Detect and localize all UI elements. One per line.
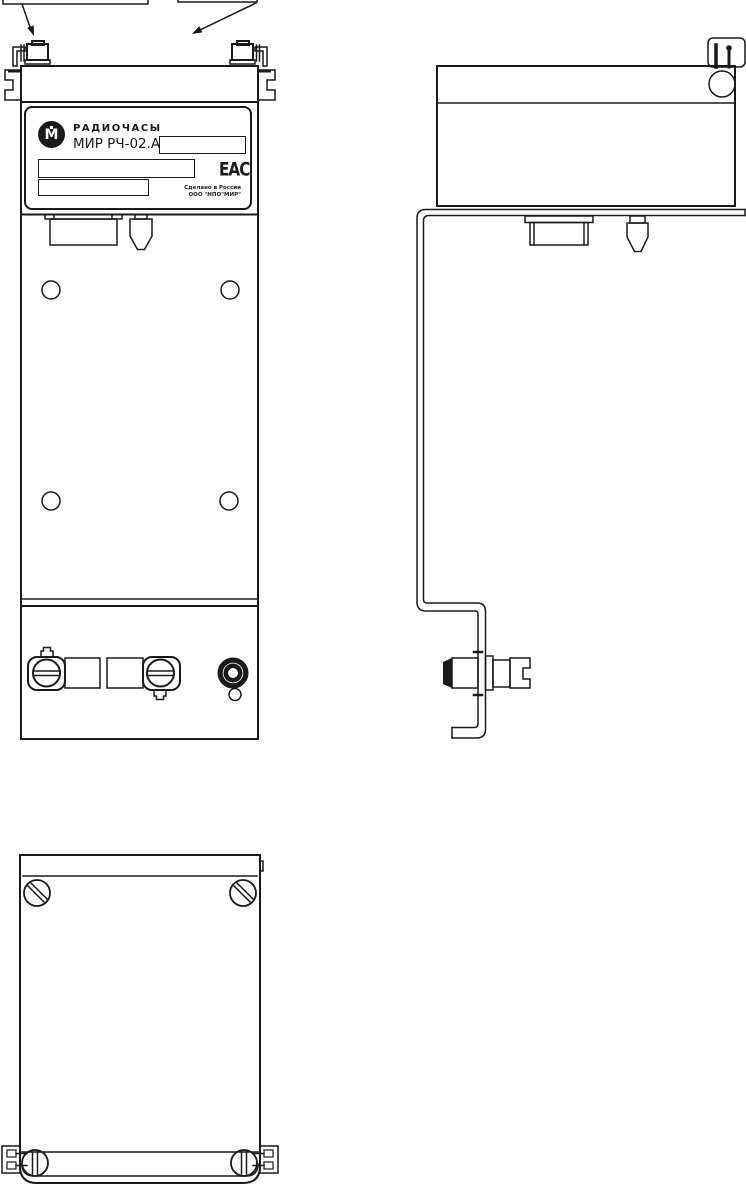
- mounting-hole-bottom-left: [42, 492, 60, 510]
- bracket-connector-side-icon: [443, 652, 530, 695]
- callout-right: [178, 0, 257, 34]
- terminal-block-left: [65, 658, 100, 688]
- bottom-outline: [20, 855, 260, 1183]
- product-type-label: РАДИОЧАСЫ: [73, 123, 162, 134]
- bottom-view: [2, 855, 278, 1183]
- antenna-bracket-side-icon: [708, 38, 745, 97]
- info-field-box-2: [38, 179, 149, 196]
- din-clip-right-icon: [258, 70, 275, 100]
- callout-left: [3, 0, 148, 36]
- serial-field-box: [159, 136, 246, 154]
- cable-gland-bottom-right-icon: [143, 657, 180, 700]
- info-field-box-1: [38, 159, 195, 178]
- mir-logo-icon: М: [38, 121, 65, 148]
- technical-drawing-radio-clock: М РАДИОЧАСЫ МИР РЧ-02.А ЕАС Сделано в Ро…: [0, 0, 746, 1185]
- enclosure-top-cap: [21, 66, 258, 102]
- mounting-hole-top-left: [42, 281, 60, 299]
- side-view: [417, 38, 745, 738]
- mounting-hole-bottom-right: [220, 492, 238, 510]
- antenna-connector-icon: [219, 659, 248, 688]
- terminal-block-right: [107, 658, 143, 688]
- cable-gland-top-icon: [130, 215, 152, 250]
- cable-gland-bottom-left-icon: [28, 648, 65, 691]
- made-in-label: Сделано в России: [184, 185, 241, 191]
- cover-screw-top-left-icon: [24, 880, 50, 906]
- cable-gland-side-icon: [627, 216, 648, 252]
- dsub-connector-side-icon: [525, 216, 593, 245]
- led-indicator-icon: [229, 689, 241, 701]
- antenna-clamp-left-icon: [13, 41, 50, 66]
- model-label: МИР РЧ-02.А: [73, 136, 160, 152]
- nameplate: М РАДИОЧАСЫ МИР РЧ-02.А ЕАС Сделано в Ро…: [24, 106, 252, 210]
- antenna-clamp-right-icon: [230, 41, 267, 66]
- manufacturer-label: ООО "НПО"МИР": [188, 192, 241, 198]
- dsub-connector-front-icon: [45, 215, 122, 246]
- din-clip-left-icon: [5, 70, 21, 100]
- mounting-hole-top-right: [221, 281, 239, 299]
- cover-screw-top-right-icon: [230, 880, 256, 906]
- eac-mark-icon: ЕАС: [219, 157, 244, 182]
- side-body: [437, 66, 735, 206]
